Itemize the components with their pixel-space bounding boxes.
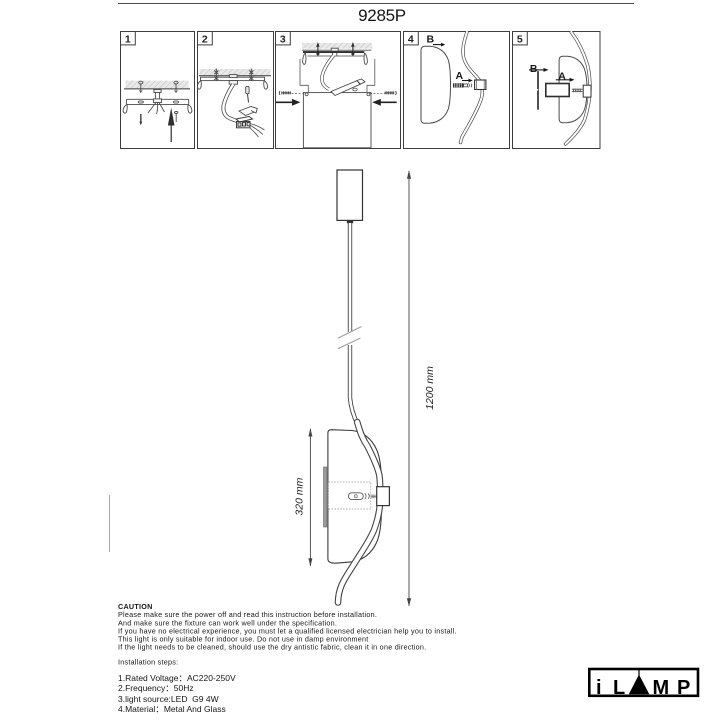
svg-text:P: P (677, 677, 690, 699)
svg-text:L: L (613, 677, 625, 699)
svg-text:M: M (653, 677, 670, 699)
svg-text:1: 1 (124, 33, 130, 45)
svg-text:3: 3 (280, 33, 286, 45)
svg-text:4: 4 (408, 33, 414, 45)
svg-text:5: 5 (517, 33, 523, 45)
svg-text:1200 mm: 1200 mm (424, 366, 436, 410)
svg-text:320 mm: 320 mm (294, 477, 306, 515)
svg-text:i: i (596, 677, 602, 699)
svg-text:A: A (558, 70, 566, 82)
svg-text:2: 2 (201, 33, 207, 45)
svg-text:B: B (427, 33, 435, 45)
svg-text:B: B (530, 63, 538, 75)
